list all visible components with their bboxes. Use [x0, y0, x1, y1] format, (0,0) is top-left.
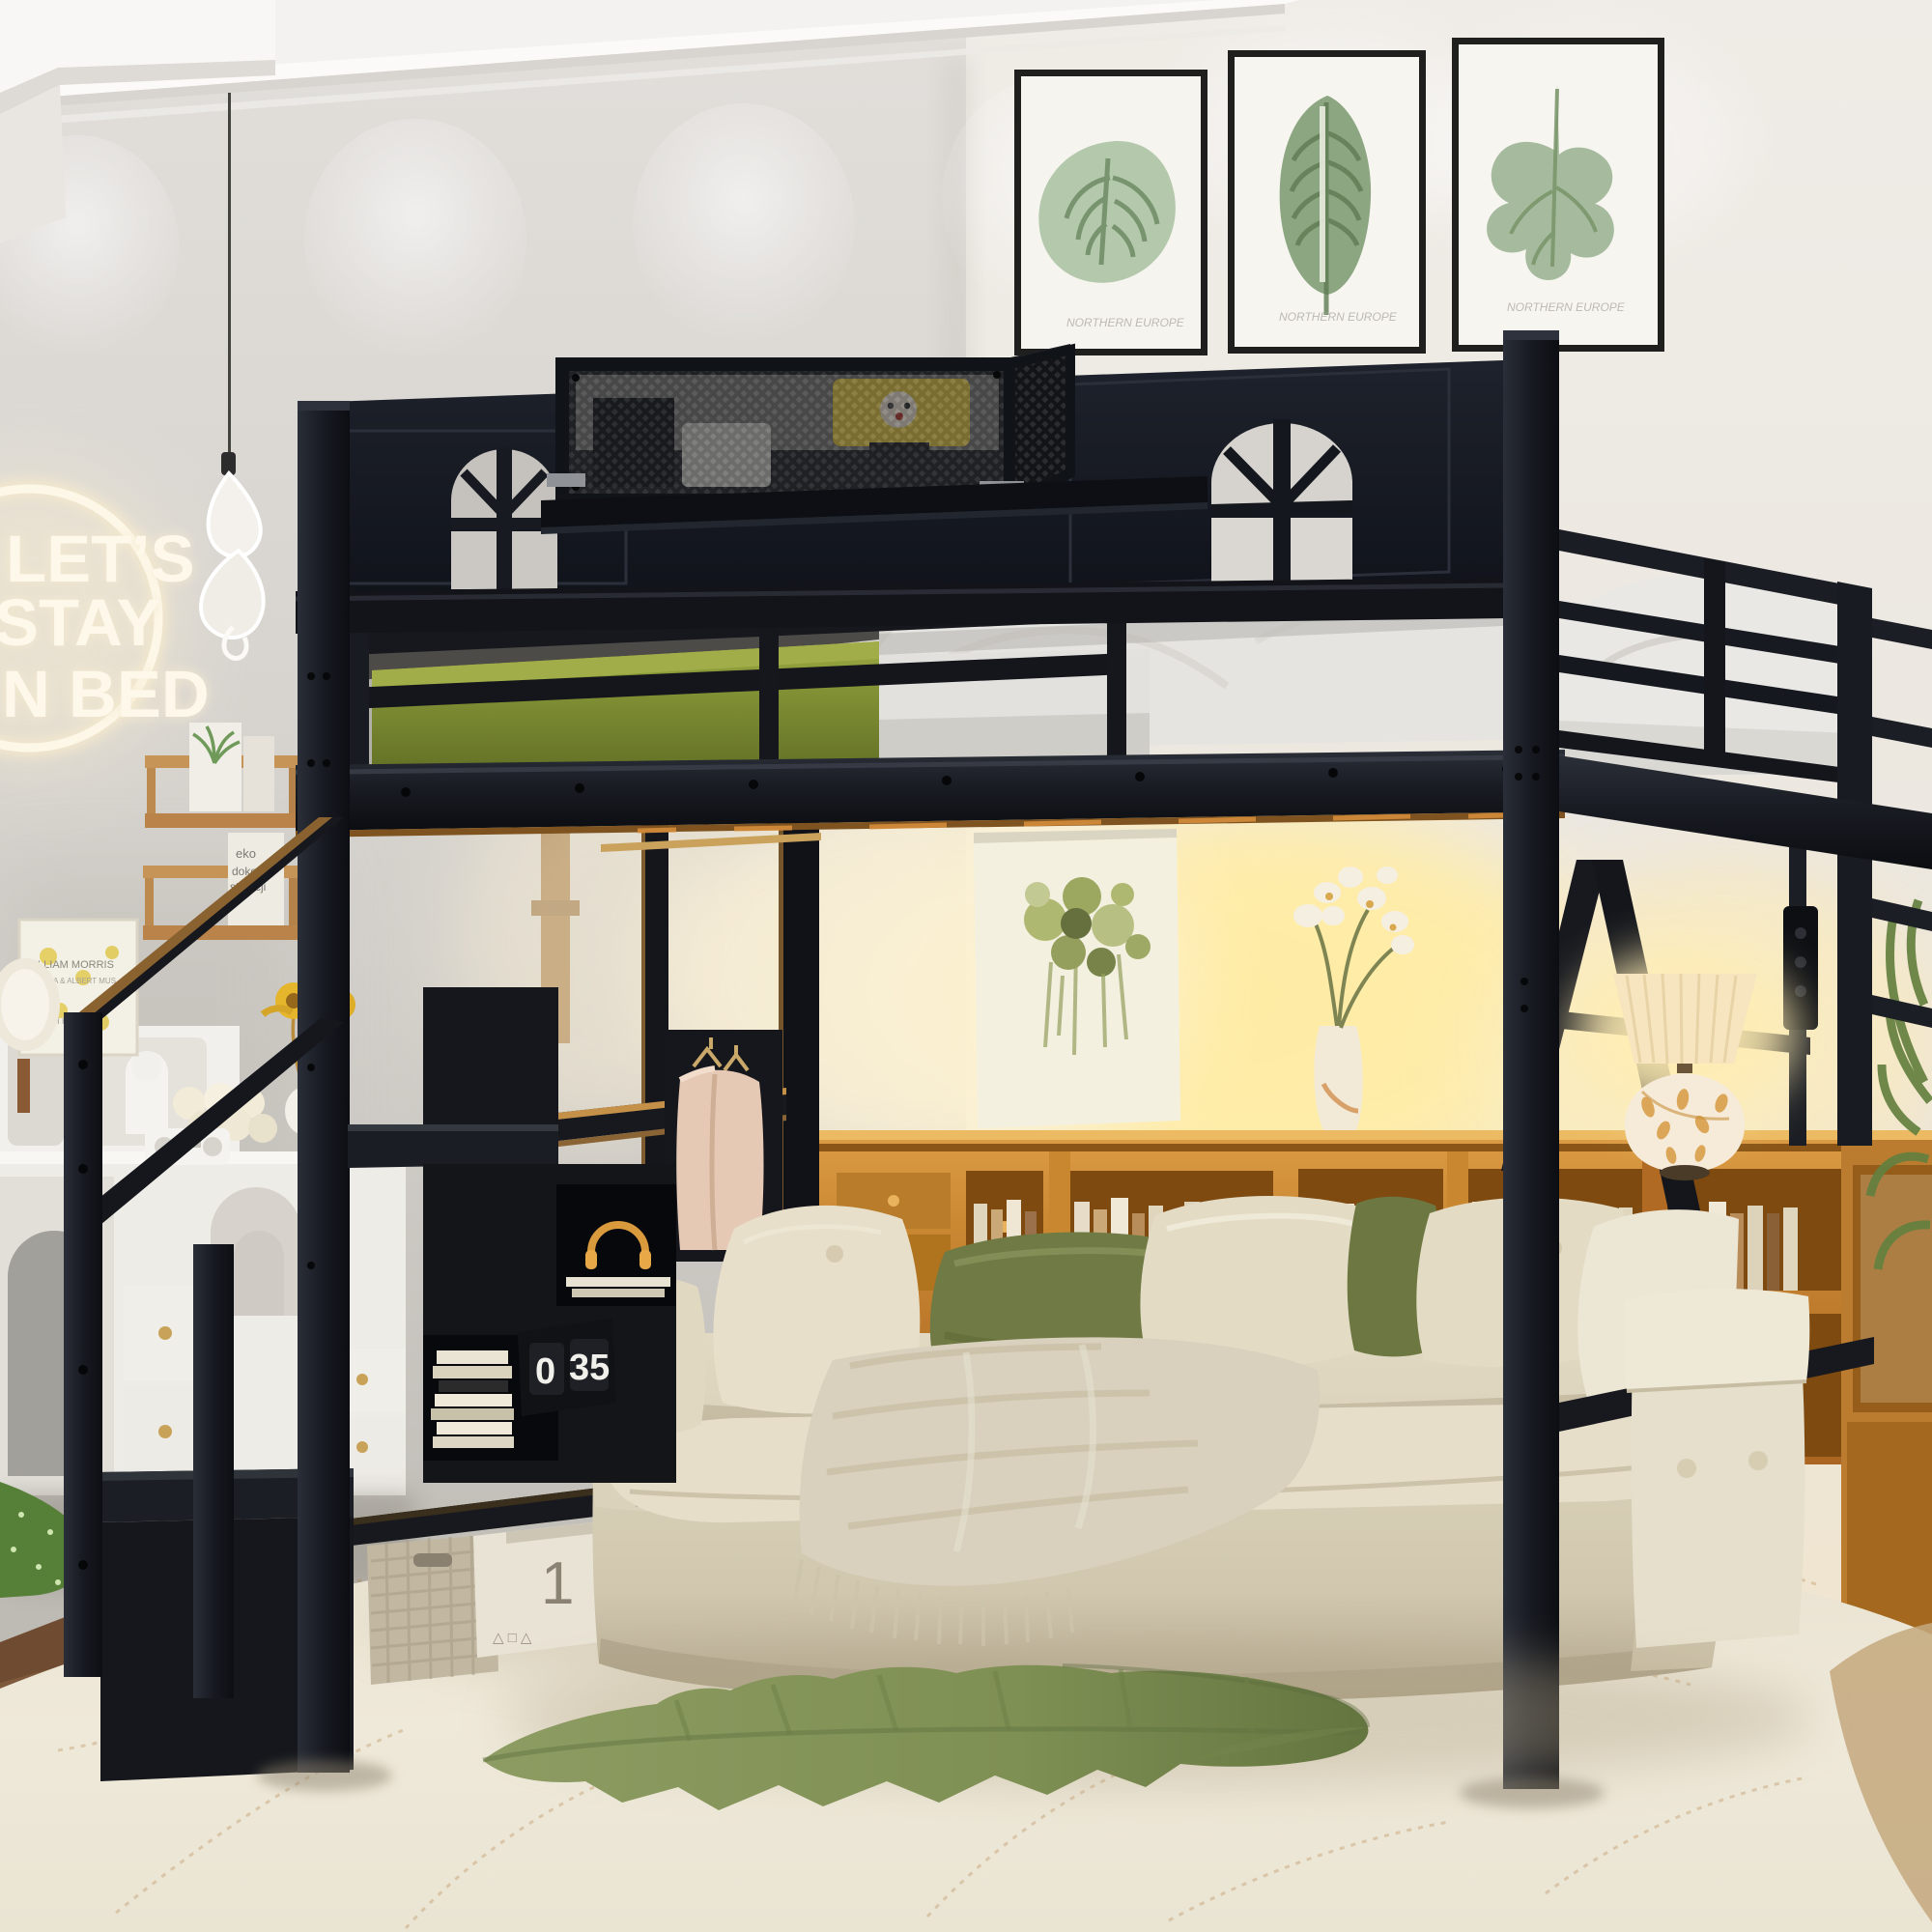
svg-text:STAY: STAY [0, 585, 161, 660]
svg-text:NORTHERN EUROPE: NORTHERN EUROPE [1066, 316, 1185, 329]
svg-text:NORTHERN EUROPE: NORTHERN EUROPE [1507, 300, 1626, 314]
svg-text:0: 0 [535, 1351, 555, 1392]
svg-text:N BED: N BED [2, 657, 210, 731]
svg-text:35: 35 [569, 1348, 610, 1388]
svg-text:1: 1 [541, 1550, 574, 1617]
svg-text:NORTHERN EUROPE: NORTHERN EUROPE [1279, 310, 1398, 324]
svg-text:△ □ △: △ □ △ [493, 1630, 532, 1646]
svg-text:eko: eko [236, 846, 256, 861]
